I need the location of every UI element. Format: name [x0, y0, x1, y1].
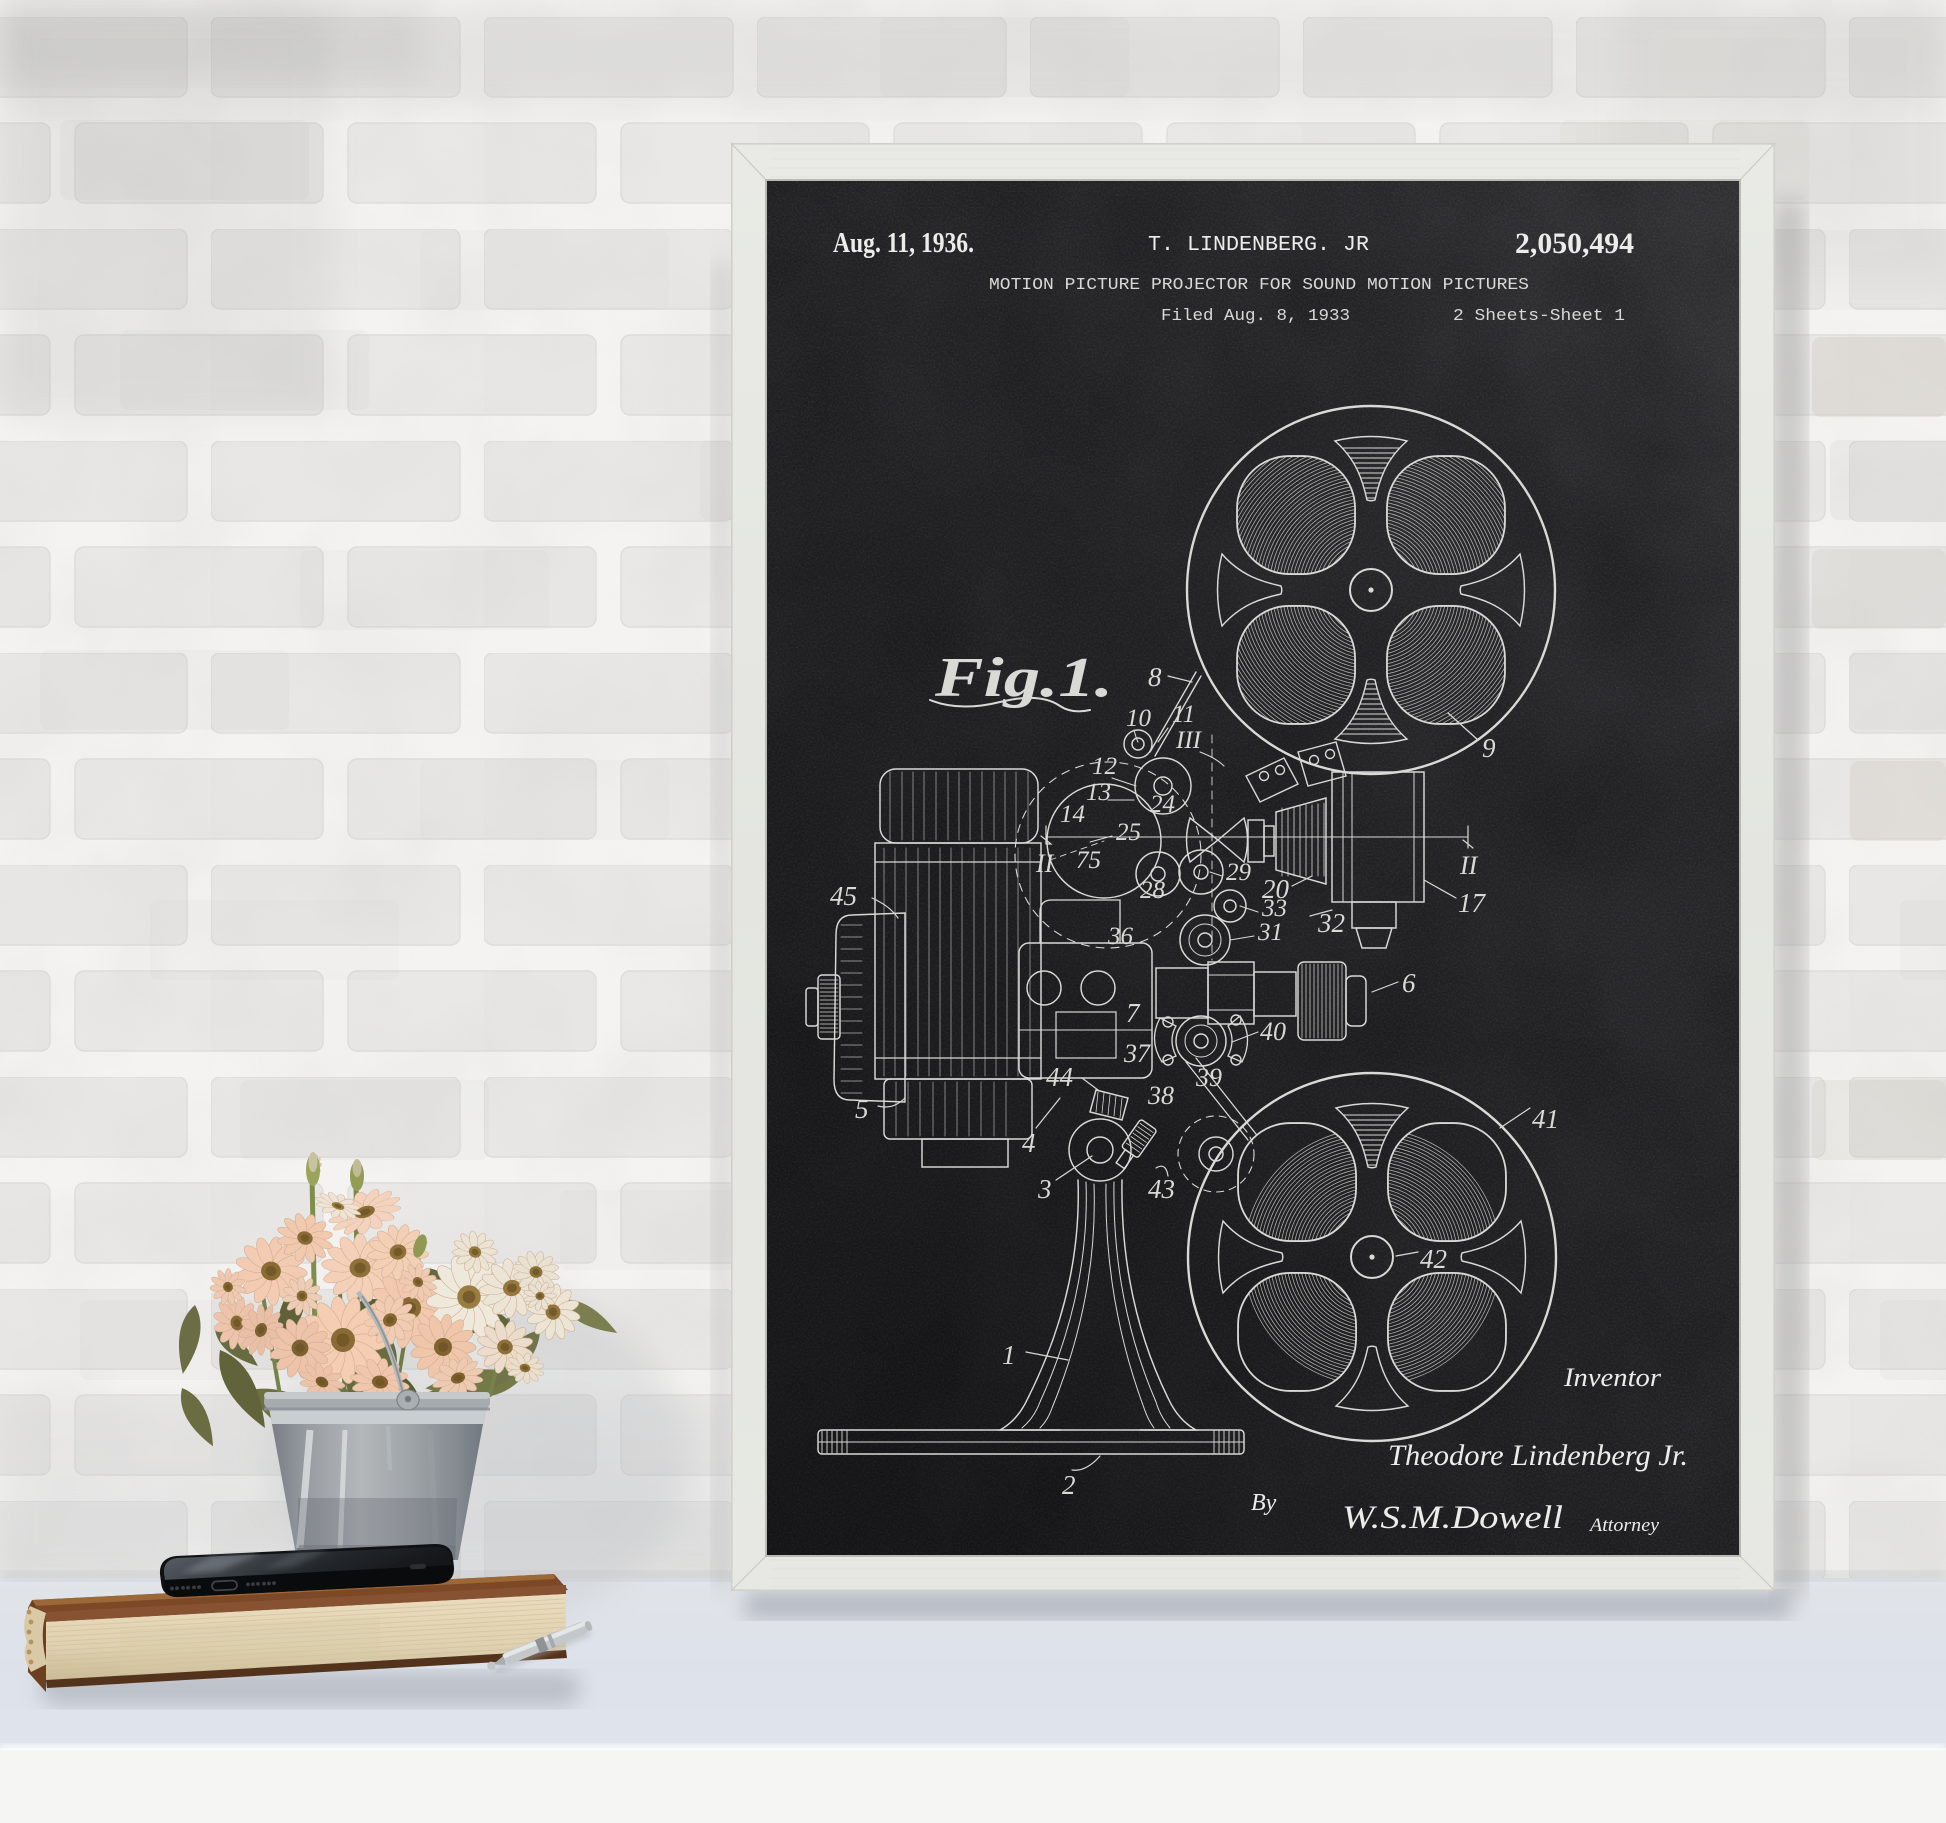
svg-text:40: 40	[1260, 1017, 1286, 1046]
svg-text:II: II	[1035, 849, 1055, 878]
svg-text:9: 9	[1482, 733, 1496, 763]
svg-text:Aug. 11, 1936.: Aug. 11, 1936.	[833, 228, 974, 259]
svg-text:38: 38	[1147, 1081, 1174, 1110]
svg-text:42: 42	[1420, 1244, 1447, 1274]
svg-text:45: 45	[830, 881, 857, 911]
svg-text:Theodore Lindenberg Jr.: Theodore Lindenberg Jr.	[1388, 1439, 1688, 1472]
svg-text:41: 41	[1532, 1104, 1559, 1134]
svg-text:13: 13	[1086, 779, 1111, 806]
svg-text:44: 44	[1046, 1062, 1073, 1092]
svg-text:2,050,494: 2,050,494	[1515, 227, 1634, 260]
svg-text:W.S.M.Dowell: W.S.M.Dowell	[1342, 1500, 1563, 1536]
svg-text:37: 37	[1123, 1039, 1151, 1068]
svg-text:4: 4	[1022, 1128, 1036, 1158]
svg-text:10: 10	[1126, 705, 1152, 732]
svg-text:12: 12	[1092, 753, 1117, 780]
svg-text:2 Sheets-Sheet 1: 2 Sheets-Sheet 1	[1453, 307, 1625, 326]
svg-text:33: 33	[1261, 895, 1287, 922]
svg-text:6: 6	[1402, 968, 1416, 998]
svg-text:29: 29	[1226, 859, 1252, 886]
svg-text:2: 2	[1062, 1470, 1076, 1500]
svg-text:Attorney: Attorney	[1588, 1515, 1660, 1536]
svg-text:8: 8	[1148, 662, 1162, 692]
svg-text:By: By	[1251, 1490, 1277, 1516]
svg-text:Fig.1.: Fig.1.	[934, 647, 1113, 709]
svg-text:11: 11	[1172, 701, 1195, 728]
svg-text:III: III	[1175, 727, 1203, 754]
svg-text:17: 17	[1458, 888, 1487, 918]
svg-text:Filed Aug. 8, 1933: Filed Aug. 8, 1933	[1161, 307, 1350, 326]
svg-text:T. LINDENBERG. JR: T. LINDENBERG. JR	[1148, 234, 1369, 257]
svg-text:75: 75	[1076, 847, 1101, 874]
svg-text:24: 24	[1150, 791, 1175, 818]
svg-text:Inventor: Inventor	[1563, 1363, 1662, 1392]
svg-text:32: 32	[1317, 908, 1345, 938]
svg-text:MOTION PICTURE PROJECTOR FOR S: MOTION PICTURE PROJECTOR FOR SOUND MOTIO…	[989, 275, 1529, 294]
svg-text:28: 28	[1140, 877, 1166, 904]
svg-text:36: 36	[1107, 923, 1134, 950]
svg-text:II: II	[1459, 851, 1479, 880]
svg-text:43: 43	[1148, 1174, 1175, 1204]
svg-text:14: 14	[1060, 801, 1085, 828]
svg-text:7: 7	[1126, 998, 1141, 1028]
svg-text:25: 25	[1116, 819, 1141, 846]
svg-text:5: 5	[855, 1094, 869, 1124]
svg-text:3: 3	[1037, 1174, 1052, 1204]
svg-text:31: 31	[1257, 919, 1283, 946]
svg-text:1: 1	[1002, 1340, 1016, 1370]
